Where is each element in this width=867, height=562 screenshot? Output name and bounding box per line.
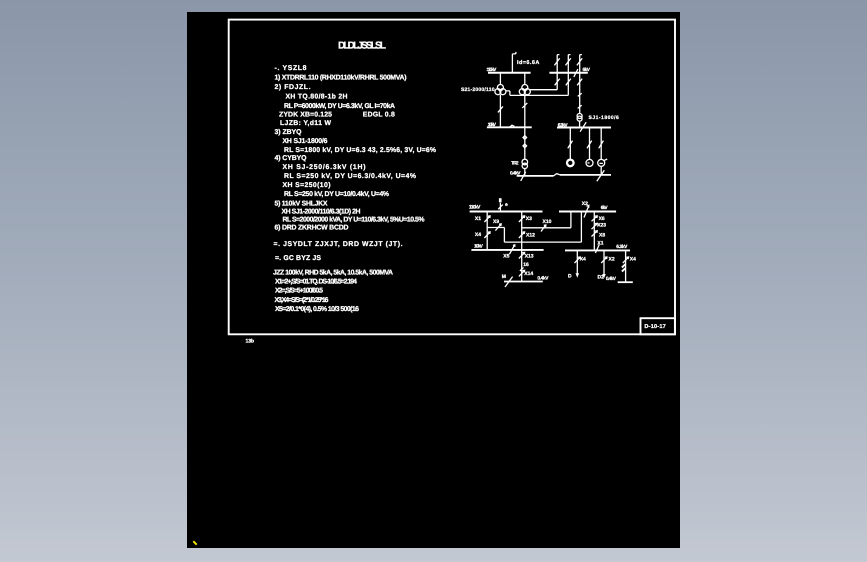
svg-text:XH SJ-250/6.3kV (1H): XH SJ-250/6.3kV (1H): [283, 164, 366, 171]
svg-text:X2: X2: [582, 201, 588, 207]
svg-text:ZYDK XB=0.125: ZYDK XB=0.125: [279, 112, 332, 119]
svg-text:-. YSZL8: -. YSZL8: [275, 65, 307, 72]
svg-text:X2: X2: [609, 257, 615, 263]
svg-text:X1: X1: [475, 216, 481, 222]
svg-text:X3: X3: [526, 216, 532, 222]
svg-text:X4: X4: [475, 232, 481, 238]
svg-text:X23: X23: [597, 222, 606, 228]
svg-text:LJZB: Y,d11 W: LJZB: Y,d11 W: [280, 120, 331, 127]
svg-text:X1=2+,S/S=01.TQ. DS-10/6.5=2.1: X1=2+,S/S=01.TQ. DS-10/6.5=2.194: [275, 278, 357, 285]
svg-text:XH TQ.80/8-1b 2H: XH TQ.80/8-1b 2H: [286, 93, 348, 100]
svg-text:0.4kV: 0.4kV: [606, 276, 617, 282]
svg-text:D2: D2: [598, 275, 605, 281]
svg-text:3) ZBYQ: 3) ZBYQ: [275, 129, 303, 136]
svg-text:X2=,S/S=5+100/60.5: X2=,S/S=5+100/60.5: [275, 287, 323, 294]
svg-text:S21-2000/110: S21-2000/110: [461, 87, 495, 93]
svg-text:SJ1-1800/6: SJ1-1800/6: [589, 115, 620, 121]
svg-text:X4: X4: [580, 257, 586, 263]
svg-text:Id=6.6A: Id=6.6A: [517, 60, 539, 66]
svg-text:RL S=250 kV, DY U=10/0.4kV, U=: RL S=250 kV, DY U=10/0.4kV, U=4%: [284, 191, 389, 198]
svg-text:X8: X8: [599, 232, 605, 238]
svg-text:XH SJ1-1800/6: XH SJ1-1800/6: [283, 138, 328, 145]
svg-text:110kV: 110kV: [469, 204, 481, 210]
svg-text:6) DRD ZKRHCW BCDD: 6) DRD ZKRHCW BCDD: [275, 224, 349, 231]
svg-text:X3,X4=S/S=(2*1/0.25*16: X3,X4=S/S=(2*1/0.25*16: [275, 297, 329, 304]
svg-text:RL S=250 kV, DY U=6.3/0.4kV, U: RL S=250 kV, DY U=6.3/0.4kV, U=4%: [284, 173, 416, 180]
svg-text:0.4kV: 0.4kV: [537, 276, 549, 282]
svg-text:RL S=1800 kV, DY U=6.3 43, 2.5: RL S=1800 kV, DY U=6.3 43, 2.5%6, 3V, U=…: [284, 147, 436, 154]
svg-text:JZZ 100kV, RHD 5kA, 5kA, 10.5k: JZZ 100kV, RHD 5kA, 5kA, 10.5kA, 500MVA: [273, 269, 393, 276]
svg-text:TR2: TR2: [511, 161, 519, 167]
svg-text:XH SJ1-2000/110/6.3(1D) 2H: XH SJ1-2000/110/6.3(1D) 2H: [282, 208, 361, 215]
svg-text:2) FDJZL.: 2) FDJZL.: [275, 84, 311, 91]
svg-text:10kV: 10kV: [488, 122, 497, 128]
svg-text:6.3kV: 6.3kV: [558, 122, 569, 128]
svg-text:X13: X13: [525, 254, 534, 260]
svg-text:e: e: [505, 202, 508, 208]
svg-text:X14: X14: [524, 271, 533, 277]
svg-text:RL P=6000kW, DY U=6.3kV, GL I=: RL P=6000kW, DY U=6.3kV, GL I=70kA: [284, 103, 395, 110]
svg-text:XH S=250(10): XH S=250(10): [283, 182, 331, 189]
svg-text:RL S=2000/2000 kVA, DY U=110/6: RL S=2000/2000 kVA, DY U=110/6.3kV, 5%U=…: [283, 216, 425, 223]
svg-text:X5: X5: [503, 254, 509, 260]
svg-text:6.3kV: 6.3kV: [616, 244, 628, 250]
svg-text:M: M: [502, 274, 506, 280]
svg-text:X1: X1: [597, 241, 603, 247]
svg-text:X4: X4: [630, 257, 636, 263]
svg-text:6kV: 6kV: [601, 205, 609, 211]
svg-text:D: D: [568, 273, 572, 279]
svg-text:10kV: 10kV: [474, 243, 484, 249]
svg-text:X6: X6: [599, 216, 605, 222]
svg-text:X12: X12: [526, 233, 535, 239]
svg-text:13b: 13b: [246, 339, 255, 345]
svg-text:X5=2/0.1*0(4), 0.5% 10/3 500(1: X5=2/0.1*0(4), 0.5% 10/3 500(16: [275, 306, 359, 313]
svg-text:16: 16: [523, 262, 529, 268]
svg-text:EDGL 0.8: EDGL 0.8: [363, 112, 395, 119]
svg-text:5) 110kV SHLJKX: 5) 110kV SHLJKX: [275, 201, 328, 208]
svg-text:110kV: 110kV: [487, 67, 498, 73]
svg-text:D-10-17: D-10-17: [644, 324, 665, 330]
svg-text:=. JSYDLT ZJXJT, DRD WZJT (JT): =. JSYDLT ZJXJT, DRD WZJT (JT).: [274, 241, 403, 248]
svg-text:=. GC BYZ JS: =. GC BYZ JS: [275, 255, 321, 262]
svg-text:1) XTDRRL110 (RHXD110kV/RHRL 5: 1) XTDRRL110 (RHXD110kV/RHRL 500MVA): [275, 74, 407, 81]
svg-text:X10: X10: [543, 219, 552, 225]
svg-text:DLDLJSSLSL: DLDLJSSLSL: [338, 41, 386, 52]
svg-text:X9: X9: [493, 219, 499, 225]
svg-text:6kV: 6kV: [583, 67, 591, 73]
svg-text:4) CYBYQ: 4) CYBYQ: [275, 155, 308, 162]
